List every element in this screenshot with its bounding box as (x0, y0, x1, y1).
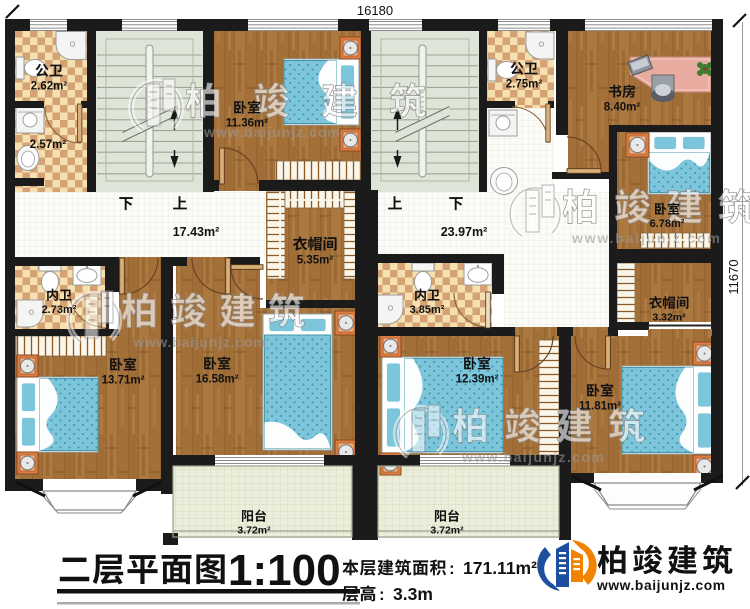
svg-text:16180: 16180 (357, 3, 393, 18)
svg-text:www.baijunjz.com: www.baijunjz.com (132, 334, 267, 350)
svg-text:www.baijunjz.com: www.baijunjz.com (461, 449, 605, 465)
svg-text:11.81m²: 11.81m² (579, 401, 621, 413)
svg-text:6.78m²: 6.78m² (650, 218, 685, 230)
svg-text:5.35m²: 5.35m² (297, 255, 334, 267)
svg-text:2.62m²: 2.62m² (31, 81, 68, 93)
svg-text:1:100: 1:100 (228, 546, 341, 595)
svg-text:3.32m²: 3.32m² (652, 312, 686, 324)
svg-text:171.11m²: 171.11m² (463, 558, 537, 578)
svg-text:www.baijunjz.com: www.baijunjz.com (571, 230, 722, 246)
svg-text:3.72m²: 3.72m² (237, 525, 271, 537)
svg-text:11.36m²: 11.36m² (226, 118, 268, 130)
svg-text:17.43m²: 17.43m² (173, 225, 220, 239)
svg-text:www.baijunjz.com: www.baijunjz.com (203, 124, 341, 140)
svg-text:3.72m²: 3.72m² (430, 525, 464, 537)
svg-text:23.97m²: 23.97m² (441, 225, 488, 239)
svg-text::: : (449, 559, 455, 578)
svg-text:16.58m²: 16.58m² (196, 374, 239, 386)
svg-text:2.75m²: 2.75m² (506, 79, 543, 91)
svg-text:3.3m: 3.3m (393, 584, 433, 604)
svg-text:11670: 11670 (726, 259, 741, 294)
svg-text:12.39m²: 12.39m² (456, 374, 499, 386)
svg-text:8.40m²: 8.40m² (604, 102, 641, 114)
svg-text:2.73m²: 2.73m² (42, 304, 77, 316)
svg-text:2.57m²: 2.57m² (30, 139, 67, 151)
svg-text:3.85m²: 3.85m² (410, 304, 445, 316)
svg-text:13.71m²: 13.71m² (102, 375, 145, 387)
svg-text::: : (379, 585, 385, 604)
svg-text:www.baijunjz.com: www.baijunjz.com (596, 578, 726, 593)
